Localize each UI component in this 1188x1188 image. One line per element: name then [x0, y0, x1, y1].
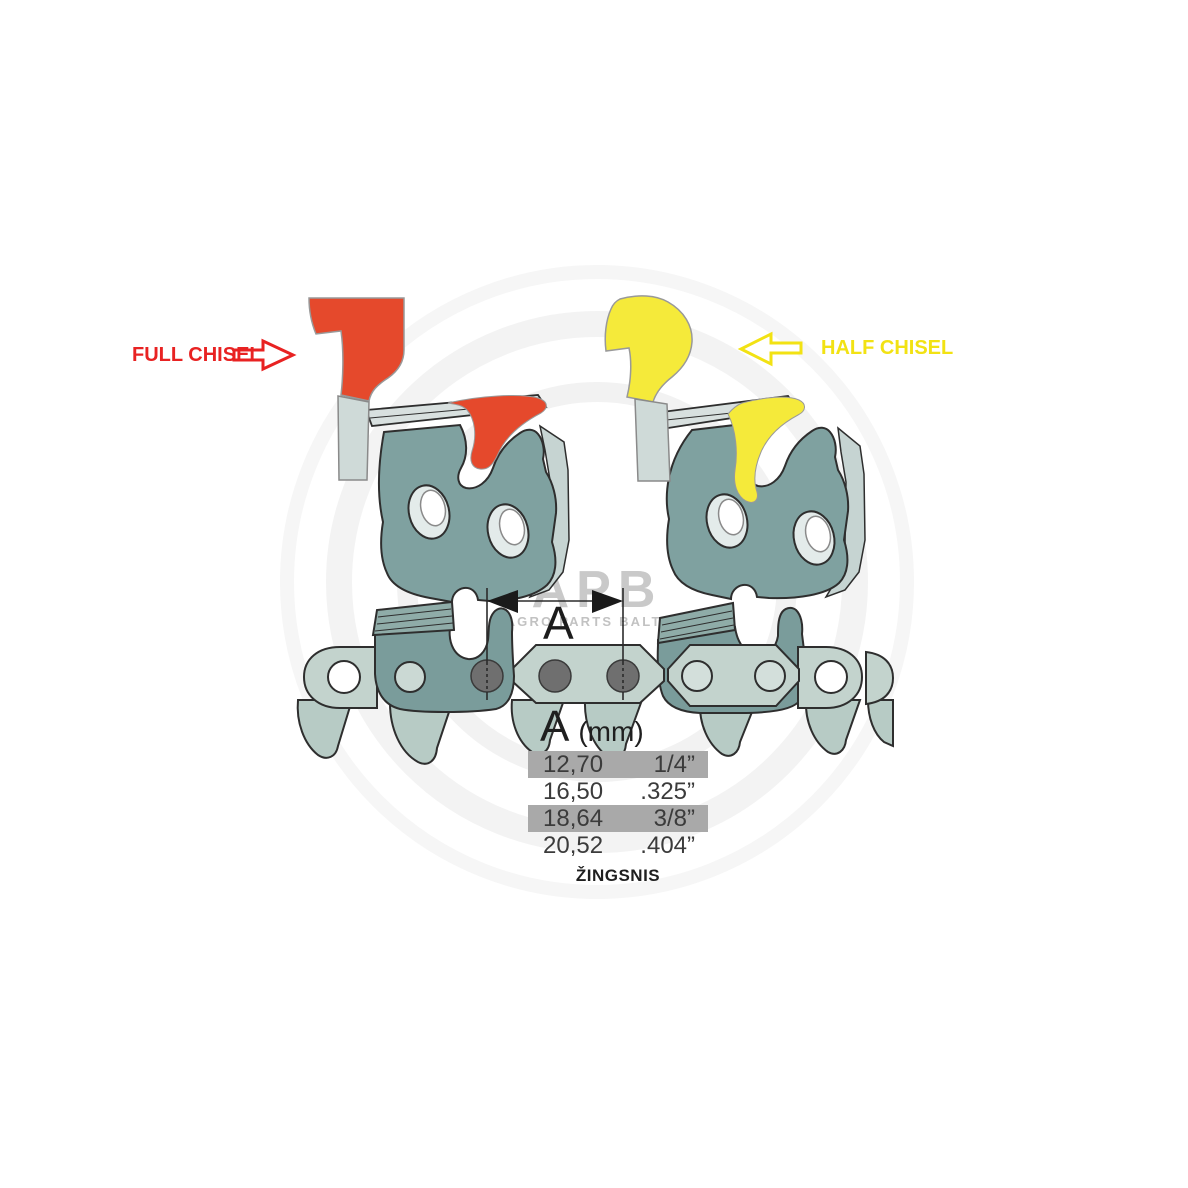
pitch-inch: 3/8”: [654, 805, 695, 833]
pitch-dimension-label: A: [543, 596, 574, 650]
pitch-mm: 16,50: [543, 778, 603, 806]
pitch-mm: 12,70: [543, 751, 603, 779]
pitch-table-header-unit: (mm): [578, 716, 643, 747]
pitch-caption: ŽINGSNIS: [528, 866, 708, 886]
rivet: [539, 660, 571, 692]
diagram-canvas: APB AGRO PARTS BALTIJA: [0, 0, 1188, 1188]
full-chisel-label: FULL CHISEL: [132, 344, 262, 367]
pitch-table-header: A(mm): [540, 702, 644, 752]
pitch-mm: 20,52: [543, 832, 603, 860]
pitch-inch: .404”: [640, 832, 695, 860]
pitch-table-row: 16,50 .325”: [528, 778, 708, 805]
pitch-inch: .325”: [640, 778, 695, 806]
chainsaw-chain-pitch-diagram: APB AGRO PARTS BALTIJA: [0, 0, 1188, 1188]
pitch-table: 12,70 1/4” 16,50 .325” 18,64 3/8” 20,52 …: [528, 751, 708, 859]
center-tie-strap: [512, 645, 664, 703]
pitch-table-row: 20,52 .404”: [528, 832, 708, 859]
pitch-table-row: 18,64 3/8”: [528, 805, 708, 832]
pitch-table-row: 12,70 1/4”: [528, 751, 708, 778]
half-chisel-label: HALF CHISEL: [821, 337, 953, 360]
pitch-mm: 18,64: [543, 805, 603, 833]
left-cutter-link: [373, 602, 514, 712]
pitch-inch: 1/4”: [654, 751, 695, 779]
pitch-table-header-letter: A: [540, 702, 569, 751]
